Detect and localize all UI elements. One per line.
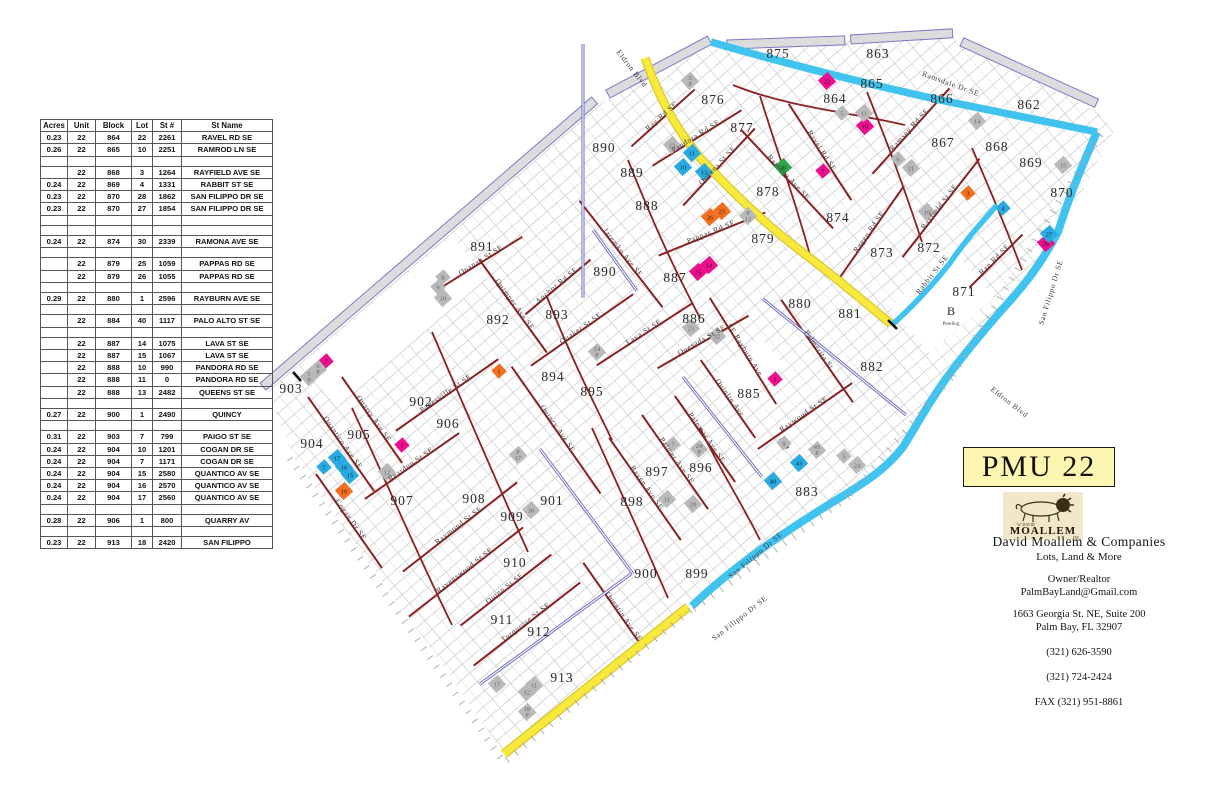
table-row: 0.242290471171COGAN DR SE <box>41 455 273 467</box>
table-cell <box>153 215 182 225</box>
table-row: 0.2322913182420SAN FILIPPO <box>41 537 273 549</box>
table-cell: 22 <box>68 455 96 467</box>
table-cell <box>132 526 153 536</box>
block-label: 890 <box>592 140 615 155</box>
table-cell <box>132 398 153 408</box>
table-cell: 15 <box>132 349 153 361</box>
table-row: 0.2422874302339RAMONA AVE SE <box>41 235 273 247</box>
table-row-blank <box>41 504 273 514</box>
table-cell: QUANTICO AV SE <box>182 467 273 479</box>
table-cell <box>96 421 132 431</box>
table-cell: 1055 <box>153 270 182 282</box>
table-cell <box>132 504 153 514</box>
table-cell <box>132 282 153 292</box>
table-cell: 904 <box>96 467 132 479</box>
table-cell: 888 <box>96 374 132 386</box>
table-cell <box>96 282 132 292</box>
table-row: 22888110PANDORA RD SE <box>41 374 273 386</box>
contact-card: David Moallem & Companies Lots, Land & M… <box>938 534 1210 708</box>
table-cell: 1854 <box>153 203 182 215</box>
table-cell <box>68 248 96 258</box>
table-row-blank <box>41 215 273 225</box>
table-cell <box>132 225 153 235</box>
block-label: 892 <box>486 312 509 327</box>
block-label: 899 <box>685 566 708 581</box>
table-cell <box>41 374 68 386</box>
table-cell <box>182 504 273 514</box>
block-label: 890 <box>593 264 616 279</box>
table-row-blank <box>41 248 273 258</box>
table-cell: 2580 <box>153 467 182 479</box>
block-label: 867 <box>931 135 954 150</box>
lot-table-header: AcresUnitBlockLotSt #St Name <box>41 120 273 132</box>
table-cell <box>41 315 68 327</box>
pending-block-label: B <box>947 304 955 318</box>
table-cell: 7 <box>132 455 153 467</box>
block-label: 909 <box>500 509 523 524</box>
table-cell: LAVA ST SE <box>182 337 273 349</box>
table-cell <box>153 305 182 315</box>
svg-text:11: 11 <box>861 110 867 117</box>
plat-map-page: 2210714152811726253110111013427171615743… <box>0 0 1210 792</box>
table-row: 0.292288012596RAYBURN AVE SE <box>41 292 273 304</box>
table-cell: RAYFIELD AVE SE <box>182 166 273 178</box>
table-cell: 900 <box>96 408 132 420</box>
table-cell: 22 <box>68 537 96 549</box>
block-label: 882 <box>860 359 883 374</box>
table-cell: 1059 <box>153 258 182 270</box>
table-cell <box>41 305 68 315</box>
table-cell <box>132 215 153 225</box>
table-cell: 2482 <box>153 386 182 398</box>
street-label: San Filippo Dr SE <box>710 594 769 643</box>
table-cell: 0.24 <box>41 467 68 479</box>
table-cell <box>132 305 153 315</box>
table-cell: 0.24 <box>41 443 68 455</box>
table-cell: 0 <box>153 374 182 386</box>
table-cell: 0.24 <box>41 480 68 492</box>
table-cell: 1 <box>132 514 153 526</box>
block-label: 885 <box>737 386 760 401</box>
table-cell: 1331 <box>153 179 182 191</box>
block-label: 910 <box>503 555 526 570</box>
table-cell <box>182 282 273 292</box>
table-cell <box>182 398 273 408</box>
table-cell <box>41 398 68 408</box>
block-label: 883 <box>795 484 818 499</box>
block-label: 886 <box>682 311 705 326</box>
table-cell: 17 <box>132 492 153 504</box>
moallem-logo: W. DAVID MOALLEM INC <box>1003 492 1083 540</box>
table-cell: 904 <box>96 455 132 467</box>
table-cell: 22 <box>68 270 96 282</box>
table-cell: 888 <box>96 386 132 398</box>
svg-text:11: 11 <box>689 150 695 157</box>
block-label: 900 <box>634 566 657 581</box>
table-cell <box>41 327 68 337</box>
table-cell: 1 <box>132 408 153 420</box>
svg-text:14: 14 <box>974 118 981 125</box>
table-cell <box>68 282 96 292</box>
table-cell <box>41 386 68 398</box>
table-cell: 870 <box>96 203 132 215</box>
table-cell: PAIGO ST SE <box>182 431 273 443</box>
table-cell: 1862 <box>153 191 182 203</box>
table-cell: 1171 <box>153 455 182 467</box>
table-cell: 0.23 <box>41 203 68 215</box>
table-cell <box>68 398 96 408</box>
table-cell <box>153 398 182 408</box>
table-cell <box>132 156 153 166</box>
table-cell <box>41 156 68 166</box>
table-cell: 22 <box>68 431 96 443</box>
table-cell: 904 <box>96 492 132 504</box>
phone-1: (321) 626-3590 <box>938 647 1210 658</box>
svg-text:21: 21 <box>908 165 914 172</box>
block-label: 903 <box>279 381 302 396</box>
table-cell: QUINCY <box>182 408 273 420</box>
svg-text:25: 25 <box>719 208 725 215</box>
table-cell <box>153 526 182 536</box>
column-header: Lot <box>132 120 153 132</box>
svg-text:10: 10 <box>680 164 686 171</box>
table-cell: 27 <box>132 203 153 215</box>
table-cell: 869 <box>96 179 132 191</box>
svg-text:30: 30 <box>528 507 534 514</box>
svg-text:27: 27 <box>1046 231 1053 238</box>
table-cell: 4 <box>132 179 153 191</box>
table-cell <box>153 282 182 292</box>
table-row: 0.31229037799PAIGO ST SE <box>41 431 273 443</box>
table-cell: 22 <box>68 480 96 492</box>
svg-text:10: 10 <box>862 123 868 130</box>
table-cell: 0.29 <box>41 292 68 304</box>
table-cell <box>41 215 68 225</box>
block-label: 904 <box>300 436 323 451</box>
table-row: 0.2322870281862SAN FILIPPO DR SE <box>41 191 273 203</box>
svg-text:40: 40 <box>770 478 776 485</box>
address-line1: 1663 Georgia St. NE, Suite 200 <box>938 609 1210 620</box>
svg-text:1: 1 <box>400 442 403 449</box>
table-cell <box>41 421 68 431</box>
table-cell: 22 <box>68 166 96 178</box>
block-label: 863 <box>866 46 889 61</box>
table-row-blank <box>41 305 273 315</box>
table-cell: 870 <box>96 191 132 203</box>
svg-text:26: 26 <box>707 214 713 221</box>
table-cell: 1075 <box>153 337 182 349</box>
street-label: Eldron Blvd <box>989 385 1030 420</box>
table-cell: 2261 <box>153 132 182 144</box>
table-cell <box>41 337 68 349</box>
table-row: 22888132482QUEENS ST SE <box>41 386 273 398</box>
table-row: 2286831264RAYFIELD AVE SE <box>41 166 273 178</box>
table-cell: PAPPAS RD SE <box>182 270 273 282</box>
table-row: 0.2622865102251RAMROD LN SE <box>41 144 273 156</box>
svg-text:20: 20 <box>690 501 696 508</box>
table-cell: 22 <box>68 132 96 144</box>
svg-text:23: 23 <box>688 325 694 332</box>
table-row: 22879251059PAPPAS RD SE <box>41 258 273 270</box>
table-cell: 1201 <box>153 443 182 455</box>
table-cell: RAMONA AVE SE <box>182 235 273 247</box>
table-cell: 22 <box>68 514 96 526</box>
table-cell: 26 <box>132 270 153 282</box>
table-cell: 22 <box>68 191 96 203</box>
table-cell: 28 <box>132 191 153 203</box>
table-cell: 40 <box>132 315 153 327</box>
table-row: 0.2322870271854SAN FILIPPO DR SE <box>41 203 273 215</box>
table-cell: 0.23 <box>41 191 68 203</box>
lot-table: AcresUnitBlockLotSt #St Name 0.232286422… <box>40 119 273 549</box>
block-label: 895 <box>580 384 603 399</box>
table-row: 0.2422904152580QUANTICO AV SE <box>41 467 273 479</box>
block-label: 872 <box>917 240 940 255</box>
block-label: 868 <box>985 139 1008 154</box>
table-cell: 800 <box>153 514 182 526</box>
table-cell: QUEENS ST SE <box>182 386 273 398</box>
table-cell: RAYBURN AVE SE <box>182 292 273 304</box>
block-label: 898 <box>620 494 643 509</box>
phone-2: (321) 724-2424 <box>938 672 1210 683</box>
table-cell: 22 <box>68 203 96 215</box>
table-cell: 0.24 <box>41 235 68 247</box>
table-cell <box>96 225 132 235</box>
svg-text:6: 6 <box>896 156 899 163</box>
block-label: 873 <box>870 245 893 260</box>
svg-text:24: 24 <box>854 462 861 469</box>
table-row-blank <box>41 526 273 536</box>
table-cell: 22 <box>68 179 96 191</box>
table-cell: 903 <box>96 431 132 443</box>
table-cell <box>68 327 96 337</box>
block-label: 894 <box>541 369 564 384</box>
table-cell: PANDORA RD SE <box>182 362 273 374</box>
table-cell: 0.24 <box>41 492 68 504</box>
table-cell: 0.28 <box>41 514 68 526</box>
block-label: 874 <box>826 210 849 225</box>
block-label: 880 <box>788 296 811 311</box>
table-cell: QUARRY AV <box>182 514 273 526</box>
table-cell: 1067 <box>153 349 182 361</box>
table-cell: 880 <box>96 292 132 304</box>
table-cell: PAPPAS RD SE <box>182 258 273 270</box>
table-row-blank <box>41 327 273 337</box>
table-cell <box>182 225 273 235</box>
table-cell: 7 <box>132 431 153 443</box>
block-label: 908 <box>462 491 485 506</box>
table-cell <box>96 504 132 514</box>
table-cell: 913 <box>96 537 132 549</box>
pmu-title: PMU 22 <box>982 450 1097 484</box>
table-cell: 887 <box>96 349 132 361</box>
table-cell <box>182 305 273 315</box>
block-label: 891 <box>470 239 493 254</box>
table-row: 0.272290012490QUINCY <box>41 408 273 420</box>
table-cell: 3 <box>132 166 153 178</box>
email: PalmBayLand@Gmail.com <box>938 587 1210 598</box>
table-cell <box>96 327 132 337</box>
fax: FAX (321) 951-8861 <box>938 697 1210 708</box>
table-cell <box>41 349 68 361</box>
table-cell: 0.23 <box>41 537 68 549</box>
block-label: 864 <box>823 91 846 106</box>
column-header: St Name <box>182 120 273 132</box>
block-label: 902 <box>409 394 432 409</box>
block-label: 887 <box>663 270 686 285</box>
table-cell: 18 <box>132 537 153 549</box>
table-cell <box>153 248 182 258</box>
block-label: 871 <box>952 284 975 299</box>
table-cell <box>153 504 182 514</box>
table-row: 0.2322864222261RAVEL RD SE <box>41 132 273 144</box>
address-line2: Palm Bay, FL 32907 <box>938 622 1210 633</box>
table-cell <box>41 270 68 282</box>
svg-text:17: 17 <box>334 455 341 462</box>
block-label: 875 <box>766 46 789 61</box>
table-cell <box>41 526 68 536</box>
svg-text:5: 5 <box>840 110 843 117</box>
table-row: 0.2422904172560QUANTICO AV SE <box>41 492 273 504</box>
table-cell: 1 <box>132 292 153 304</box>
table-row-blank <box>41 282 273 292</box>
svg-text:43: 43 <box>796 460 802 467</box>
block-label: 913 <box>550 670 573 685</box>
table-cell: 10 <box>132 362 153 374</box>
table-cell: 2339 <box>153 235 182 247</box>
table-cell <box>96 526 132 536</box>
table-cell: 865 <box>96 144 132 156</box>
table-cell <box>153 327 182 337</box>
svg-text:8: 8 <box>441 274 444 281</box>
svg-text:8: 8 <box>782 440 785 447</box>
table-cell: 990 <box>153 362 182 374</box>
table-cell: 22 <box>68 349 96 361</box>
table-cell <box>153 225 182 235</box>
company-name: David Moallem & Companies <box>938 534 1210 550</box>
table-cell <box>182 421 273 431</box>
table-cell: 11 <box>132 374 153 386</box>
table-cell: 874 <box>96 235 132 247</box>
table-cell: 30 <box>132 235 153 247</box>
table-cell: 13 <box>132 386 153 398</box>
table-cell: 22 <box>132 132 153 144</box>
table-cell: COGAN DR SE <box>182 455 273 467</box>
table-cell: 887 <box>96 337 132 349</box>
table-row: 0.2422904162570QUANTICO AV SE <box>41 480 273 492</box>
table-cell: SAN FILIPPO <box>182 537 273 549</box>
table-cell: 0.23 <box>41 132 68 144</box>
table-cell <box>41 258 68 270</box>
table-cell: 879 <box>96 258 132 270</box>
table-cell <box>41 282 68 292</box>
table-cell: 10 <box>132 443 153 455</box>
table-cell: QUANTICO AV SE <box>182 480 273 492</box>
table-cell: LAVA ST SE <box>182 349 273 361</box>
block-label: 896 <box>689 460 712 475</box>
table-row: 0.2422904101201COGAN DR SE <box>41 443 273 455</box>
block-label: 888 <box>635 198 658 213</box>
table-row: 22887141075LAVA ST SE <box>41 337 273 349</box>
table-row: 22887151067LAVA ST SE <box>41 349 273 361</box>
svg-text:3: 3 <box>966 190 969 197</box>
table-row: 0.28229061800QUARRY AV <box>41 514 273 526</box>
table-cell <box>41 504 68 514</box>
column-header: St # <box>153 120 182 132</box>
table-cell: 2420 <box>153 537 182 549</box>
table-row-blank <box>41 421 273 431</box>
table-cell <box>153 156 182 166</box>
block-label: 870 <box>1050 185 1073 200</box>
block-label: 865 <box>860 76 883 91</box>
table-cell <box>132 327 153 337</box>
table-cell <box>68 225 96 235</box>
table-cell: 904 <box>96 480 132 492</box>
table-cell: 14 <box>132 337 153 349</box>
table-row: 0.242286941331RABBIT ST SE <box>41 179 273 191</box>
table-cell: RAMROD LN SE <box>182 144 273 156</box>
block-label: 878 <box>756 184 779 199</box>
table-cell <box>41 362 68 374</box>
table-cell: 22 <box>68 258 96 270</box>
table-cell: 904 <box>96 443 132 455</box>
block-label: 877 <box>730 120 753 135</box>
block-label: 879 <box>751 231 774 246</box>
table-cell <box>96 248 132 258</box>
block-label: 901 <box>540 493 563 508</box>
table-row: 2288810990PANDORA RD SE <box>41 362 273 374</box>
table-cell <box>68 526 96 536</box>
table-cell <box>41 225 68 235</box>
table-cell: SAN FILIPPO DR SE <box>182 191 273 203</box>
table-cell: 2251 <box>153 144 182 156</box>
table-cell: 884 <box>96 315 132 327</box>
table-row-blank <box>41 225 273 235</box>
owner-role: Owner/Realtor <box>938 574 1210 585</box>
table-cell: 2570 <box>153 480 182 492</box>
table-cell: PALO ALTO ST SE <box>182 315 273 327</box>
table-cell <box>182 327 273 337</box>
table-cell <box>68 421 96 431</box>
table-cell <box>182 215 273 225</box>
table-cell: 868 <box>96 166 132 178</box>
table-cell <box>182 248 273 258</box>
block-label: 866 <box>930 91 953 106</box>
table-cell: 22 <box>68 467 96 479</box>
table-cell: 2596 <box>153 292 182 304</box>
table-row-blank <box>41 156 273 166</box>
table-cell <box>96 305 132 315</box>
table-cell: 864 <box>96 132 132 144</box>
svg-text:15: 15 <box>347 472 353 479</box>
block-label: 889 <box>620 165 643 180</box>
svg-text:17: 17 <box>494 681 501 688</box>
table-cell: 22 <box>68 362 96 374</box>
table-cell: 906 <box>96 514 132 526</box>
table-cell: 0.24 <box>41 179 68 191</box>
column-header: Block <box>96 120 132 132</box>
table-cell: 799 <box>153 431 182 443</box>
block-label: 912 <box>527 624 550 639</box>
svg-text:22: 22 <box>824 78 830 85</box>
table-cell: 16 <box>132 480 153 492</box>
table-cell <box>68 504 96 514</box>
table-cell: COGAN DR SE <box>182 443 273 455</box>
table-cell <box>182 156 273 166</box>
table-cell: SAN FILIPPO DR SE <box>182 203 273 215</box>
column-header: Acres <box>41 120 68 132</box>
table-cell: 22 <box>68 408 96 420</box>
